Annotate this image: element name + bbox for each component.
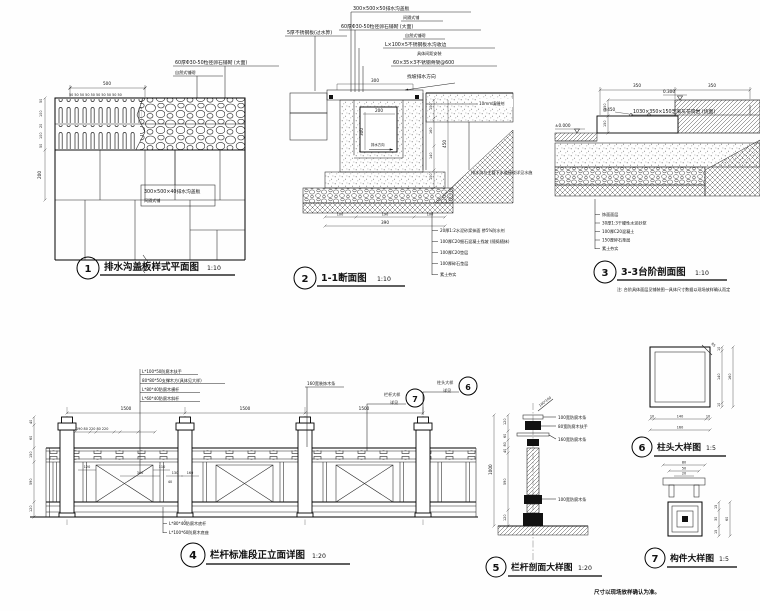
d6-bubble-number: 6 — [639, 443, 646, 454]
d4-label-top2: L*80*40防腐木横杆 — [142, 386, 179, 392]
d2-frame-label: 60×35×3不锈钢骨架@600 — [393, 59, 454, 66]
d1-scale: 1:10 — [207, 265, 221, 272]
d7-profile: 80 50 20 — [662, 461, 707, 498]
d3-title-text: 3-3台阶剖面图 — [621, 266, 686, 278]
drawing-1-drain-cover-plan: 60厚Φ30-50粒径卵石铺砌 (大面) 自然式铺砌 500 50 50 50 … — [25, 55, 285, 290]
d5-dim-l1: 60 — [503, 434, 507, 438]
d3-title: 3 3-3台阶剖面图 1:10 注: 台阶具体面层见铺装图—具体尺寸数据以现场放… — [594, 261, 730, 292]
d5-dim-l2: 80 — [503, 442, 507, 446]
d2-note-4: 素土夯实 — [440, 271, 456, 277]
d2-pebble-label2: 自然式铺砌 — [405, 32, 425, 38]
d5-label-r3: 100宽防腐木条 — [558, 496, 586, 502]
d4-title-text: 栏杆标准段正立面详图 — [210, 549, 305, 561]
d4-title: 4 栏杆标准段正立面详图 1:20 — [181, 543, 350, 567]
d4-callout6-label1: 柱头大样 — [437, 379, 453, 385]
d1-labels: 60厚Φ30-50粒径卵石铺砌 (大面) 自然式铺砌 — [173, 59, 279, 98]
d7-dim-r2: 15 — [714, 530, 718, 534]
d2-dim-200: 200 — [375, 108, 383, 113]
d2-steel-edge-label2: 具体间距安装 — [417, 50, 442, 56]
d7-dim-50: 50 — [682, 467, 686, 471]
d1-left-dims: 50 100 20 100 50 200 — [37, 97, 47, 202]
d4-dim-row-top: 190 80 220 80 220 — [76, 427, 108, 431]
d2-top-labels: 300×500×50排水沟盖板 间隔式铺 60厚Φ30-50粒径卵石铺砌 (大面… — [285, 5, 497, 92]
d3-stone-text: 1030×350×150芝麻灰花岗岩 (烧面) — [633, 108, 715, 115]
d6-dim-r1: 140 — [717, 374, 721, 380]
d3-note-0: 饰面面层 — [602, 211, 618, 217]
d2-pebble-label1: 60厚Φ30-50粒径卵石铺砌 (大面) — [341, 23, 413, 30]
d5-label-r0: 100宽防腐木条 — [558, 414, 586, 420]
drawing-5-railing-section: 100*100 120 60 80 40 590 120 1000 100宽防腐… — [480, 395, 632, 587]
d4-dim-l1: 60 — [29, 436, 33, 440]
d1-dim-500: 500 — [103, 81, 111, 86]
d2-note-1: 100厚C20细石混凝土找坡 (随捣随抹) — [440, 238, 510, 244]
drawing-4-railing-elevation: 1500 1500 1500 190 80 220 80 220 120 340… — [20, 355, 482, 570]
d3-note-2: 100厚C20混凝土 — [602, 228, 634, 234]
d6-dim-r2: 10 — [717, 403, 721, 407]
d3-dim-150b: 150 — [603, 121, 607, 127]
d4-callout7-number: 7 — [412, 395, 418, 404]
d4-dim-l0: 40 — [29, 420, 33, 424]
d3-dim-350b: 350 — [708, 83, 716, 88]
d2-dim-390: 390 — [381, 220, 389, 225]
d6-bottom-dims: 10 140 10 160 — [649, 415, 712, 432]
d2-grate-label: 5厚不锈钢板(过水箅) — [287, 29, 332, 36]
d5-bubble-number: 5 — [493, 563, 500, 574]
cad-sheet: 60厚Φ30-50粒径卵石铺砌 (大面) 自然式铺砌 500 50 50 50 … — [0, 0, 760, 611]
drawing-7-component-detail: 80 50 20 15 30 15 60 7 构件大样图 1:5 — [633, 458, 760, 580]
d6-title: 6 柱头大样图 1:5 — [632, 437, 726, 457]
d6-dim-r0: 10 — [717, 347, 721, 351]
d4-dim-i3: 130 — [172, 471, 178, 475]
d4-rails — [30, 448, 478, 517]
d4-callout-7: 7 栏杆大样 详见 — [367, 389, 424, 451]
d7-title-text: 构件大样图 — [670, 552, 714, 564]
d2-dim-450: 450 — [442, 140, 447, 148]
d2-scale: 1:10 — [377, 276, 391, 283]
d4-callout-6: 6 柱头大样 详见 — [423, 377, 477, 415]
d6-dim-rtotal: 160 — [728, 374, 732, 380]
d4-dim-l3: 590 — [29, 479, 33, 485]
d7-bubble-number: 7 — [652, 554, 659, 565]
d2-section-body — [290, 90, 513, 213]
d2-note-0: 20厚1:2水泥砂浆抹面 掺5%防水剂 — [440, 227, 505, 233]
d1-pebble-label: 60厚Φ30-50粒径卵石铺砌 (大面) — [175, 59, 247, 66]
d2-dim-r1: 160 — [429, 128, 433, 134]
d3-dim-150a: 150 — [603, 104, 607, 110]
d2-dim-300: 300 — [371, 78, 379, 83]
d4-label-top1: 80*80*50支撑木方(具体见大样) — [142, 377, 202, 383]
d1-dim-l0: 50 — [39, 99, 43, 103]
d1-dim-50-row: 50 50 50 50 50 50 50 50 50 50 — [69, 93, 122, 97]
d1-dim-l1: 100 — [39, 111, 43, 117]
d2-notes: 20厚1:2水泥砂浆抹面 掺5%防水剂 100厚C20细石混凝土找坡 (随捣随抹… — [432, 212, 510, 277]
d3-note-3: 150厚碎石垫层 — [602, 237, 630, 243]
d4-label-top3: L*60*40防腐木斜杆 — [142, 395, 179, 401]
d3-scale: 1:10 — [695, 270, 709, 277]
d2-dim-r2: 140 — [429, 153, 433, 159]
d4-strip-label: 160宽装饰木条 — [307, 380, 335, 386]
d5-title: 5 栏杆剖面大样图 1:20 — [486, 557, 602, 577]
d2-dim-h300: 300 — [359, 128, 364, 136]
d1-title-text: 排水沟盖板样式平面图 — [104, 261, 199, 273]
drawing-6-post-cap-detail: R5 10 140 10 160 10 140 10 160 6 柱头大样图 1… — [618, 333, 760, 465]
d7-dim-total: 60 — [725, 517, 729, 521]
d7-right-dims: 15 30 15 60 — [714, 501, 732, 538]
d2-steel-edge-label1: L×100×5不锈钢板水沟收边 — [385, 41, 446, 48]
d4-dim-i4: 160 — [187, 471, 193, 475]
d5-dim-l4: 590 — [503, 479, 507, 485]
d6-title-text: 柱头大样图 — [657, 441, 701, 453]
d2-note-3: 100厚碎石垫层 — [440, 260, 468, 266]
d2-slope-label: 找坡排水方向 — [407, 73, 436, 80]
d2-title: 2 1-1断面图 1:10 — [294, 267, 405, 289]
d4-dim-i5: 40 — [168, 480, 172, 484]
d2-note-2: 100厚C20垫层 — [440, 249, 468, 255]
d2-dim-sub1: 190 — [382, 213, 388, 217]
d4-callout6-number: 6 — [465, 383, 471, 392]
d5-dim-l3: 40 — [503, 449, 507, 453]
d4-balusters — [53, 462, 470, 502]
d5-left-dims: 120 60 80 40 590 120 1000 — [488, 414, 510, 528]
d4-dim-i0: 120 — [84, 465, 90, 469]
d2-cover-label1: 300×500×50排水沟盖板 — [353, 5, 410, 12]
d6-scale: 1:5 — [706, 445, 716, 452]
d3-level-0300: 0.300 — [663, 89, 675, 94]
d3-level-0000: ±0.000 — [555, 123, 571, 128]
d1-cover-label2: 间隔式铺 — [144, 197, 160, 203]
d1-dim-l4: 50 — [39, 144, 43, 148]
d1-dim-200: 200 — [37, 171, 42, 179]
d1-grate-band — [55, 98, 245, 150]
d4-dim-1500c: 1500 — [359, 406, 370, 411]
d1-pebble-label2: 自然式铺砌 — [175, 69, 195, 75]
d1-top-dim: 500 50 50 50 50 50 50 50 50 50 50 — [69, 81, 147, 97]
d7-scale: 1:5 — [719, 556, 729, 563]
sheet-note: 尺寸以现场放样确认为准。 — [594, 588, 744, 596]
d6-dim-b0: 10 — [650, 415, 654, 419]
d5-scale: 1:20 — [578, 565, 592, 572]
d7-dim-r0: 15 — [714, 505, 718, 509]
d4-label-bottom0: L*80*40防腐木底杆 — [169, 520, 206, 526]
d4-dim-l2: 150 — [29, 452, 33, 458]
d6-radius-label: R5 — [710, 342, 716, 348]
d2-flow-label: 排水方向 — [371, 142, 385, 147]
d4-bubble-number: 4 — [189, 549, 197, 562]
d3-note-4: 素土夯实 — [602, 245, 618, 251]
d1-cover-label: 300×500×40排水沟盖板 间隔式铺 — [141, 150, 215, 206]
d2-cover-label2: 间隔式铺 — [403, 14, 419, 20]
d4-dim-1500a: 1500 — [121, 406, 132, 411]
d7-title: 7 构件大样图 1:5 — [645, 548, 737, 568]
d2-connect-label: 排水沟与主管下水道接驳详见水施 — [471, 169, 532, 175]
d4-callout7-label1: 栏杆大样 — [384, 391, 400, 397]
d3-note-1: 30厚1:3干硬性水泥砂浆 — [602, 220, 647, 226]
d2-title-text: 1-1断面图 — [321, 272, 367, 284]
d2-bubble-number: 2 — [302, 274, 309, 285]
d6-dim-b1: 140 — [677, 415, 683, 419]
d6-plan: R5 — [650, 342, 716, 407]
d2-joint-label: 10mm填缝剂 — [479, 100, 504, 106]
d4-label-bottom1: L*100*60防腐木底座 — [169, 529, 209, 535]
d3-dim-350a: 350 — [633, 83, 641, 88]
d4-posts — [58, 407, 432, 525]
d6-dim-btotal: 160 — [677, 426, 683, 430]
drawing-2-section-1-1: 300×500×50排水沟盖板 间隔式铺 60厚Φ30-50粒径卵石铺砌 (大面… — [285, 0, 537, 300]
drawing-3-stair-section: 350 350 0.300 ±0.000 @450 1030×350×150芝麻… — [535, 35, 760, 307]
d1-cover-label1: 300×500×40排水沟盖板 — [144, 188, 201, 195]
d1-bubble-number: 1 — [85, 264, 92, 275]
d4-dim-i2: 110 — [159, 465, 165, 469]
d5-dim-total: 1000 — [488, 464, 493, 475]
d5-label-r2: 160宽防腐木条 — [558, 436, 586, 442]
d2-dim-sub0: 100 — [337, 213, 343, 217]
d6-dim-b2: 10 — [706, 415, 710, 419]
d3-notes: 饰面面层 30厚1:3干硬性水泥砂浆 100厚C20混凝土 150厚碎石垫层 素… — [595, 199, 647, 251]
d5-post-section: 100*100 — [498, 396, 588, 563]
d7-dim-20: 20 — [682, 472, 686, 476]
d2-dim-r3: 100 — [429, 174, 433, 180]
d5-right-labels: 100宽防腐木条 80宽防腐木扶手 160宽防腐木条 100宽防腐木条 — [541, 414, 588, 502]
d5-label-r1: 80宽防腐木扶手 — [558, 423, 588, 429]
d6-right-dims: 10 140 10 160 — [717, 346, 735, 409]
d2-bottom-dims: 100 190 100 390 — [324, 213, 447, 228]
d5-title-text: 栏杆剖面大样图 — [511, 561, 573, 573]
d1-pebble-area — [140, 99, 245, 150]
d7-dim-80: 80 — [682, 461, 686, 465]
d2-dim-r0: 100 — [429, 104, 433, 110]
d4-dim-l4: 120 — [29, 506, 33, 512]
d7-dim-r1: 30 — [714, 517, 718, 521]
d4-label-top0: L*100*50防腐木扶手 — [142, 368, 182, 374]
d1-dim-l3: 100 — [39, 133, 43, 139]
d5-dim-l0: 120 — [503, 419, 507, 425]
d1-dim-l2: 20 — [39, 124, 43, 128]
d7-ornament-plan — [668, 502, 702, 536]
d4-dim-1500b: 1500 — [240, 406, 251, 411]
d3-note-line: 注: 台阶具体面层见铺装图—具体尺寸数据以现场放样确认而定 — [617, 286, 730, 292]
d3-bubble-number: 3 — [602, 268, 609, 279]
d5-dim-l5: 120 — [503, 515, 507, 521]
d4-scale: 1:20 — [312, 553, 326, 560]
